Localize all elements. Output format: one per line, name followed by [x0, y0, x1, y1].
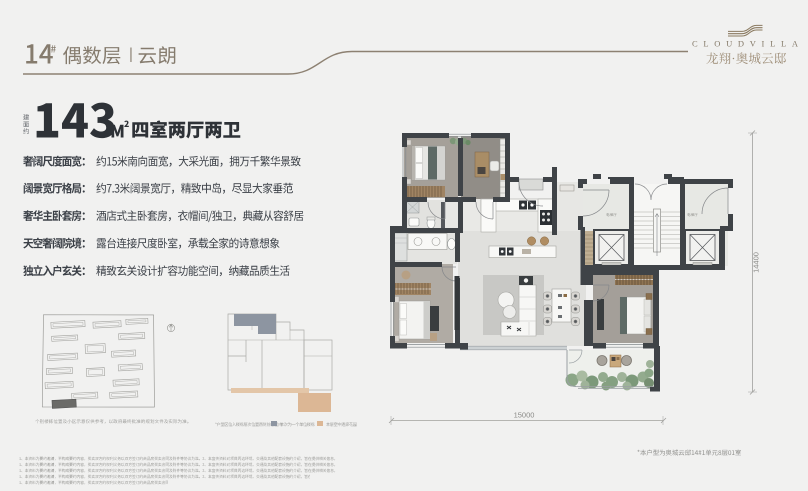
svg-text:15000: 15000 [514, 411, 535, 420]
svg-text:14400: 14400 [752, 252, 761, 273]
svg-text:CLOUDVILLA: CLOUDVILLA [692, 39, 799, 49]
